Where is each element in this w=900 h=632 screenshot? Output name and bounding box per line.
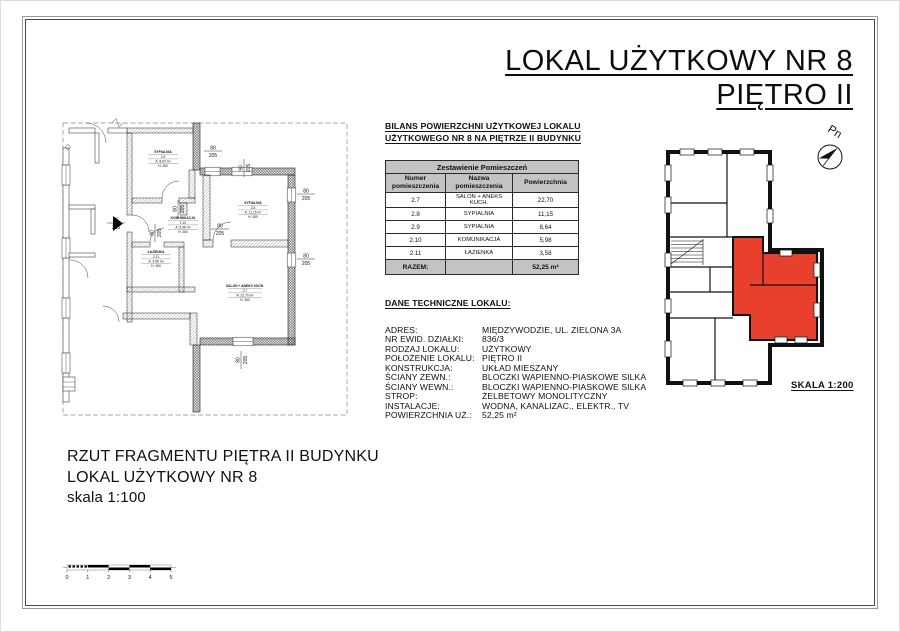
north-label: Pn — [825, 123, 843, 141]
total-value: 52,25 m² — [513, 260, 579, 275]
room-label-salon: SALON + ANEKS KUCH. 2.7 A: 22,70 m² H: 2… — [226, 284, 264, 302]
drawing-sheet: { "page": { "title_line1": "LOKAL UŻYTKO… — [0, 0, 900, 632]
svg-text:2.10: 2.10 — [180, 221, 187, 225]
dim-80-205-bottom: 80205 — [236, 351, 249, 369]
dim-80-205-right-lower: 80205 — [297, 254, 315, 267]
svg-text:A: 3,58 m²: A: 3,58 m² — [148, 259, 164, 263]
room-label-sypialnia-29: SYPIALNIA 2.9 A: 8,64 m² H: 260 — [148, 150, 178, 168]
room-schedule-table: Zestawienie Pomieszczeń Numer pomieszcze… — [385, 160, 579, 275]
svg-text:H: 260: H: 260 — [178, 230, 188, 234]
svg-text:205: 205 — [209, 153, 218, 159]
svg-text:A: 5,98 m²: A: 5,98 m² — [175, 225, 191, 229]
table-total-row: RAZEM: 52,25 m² — [386, 260, 579, 275]
tech-row: POWIERZCHNIA UŻ.:52,25 m² — [385, 411, 646, 421]
svg-text:4: 4 — [149, 575, 152, 581]
caption-line1: RZUT FRAGMENTU PIĘTRA II BUDYNKU — [67, 447, 379, 468]
svg-text:A: 22,70 m²: A: 22,70 m² — [236, 293, 254, 297]
dim-80-205-top: 80205 — [204, 146, 222, 159]
svg-text:205: 205 — [216, 231, 225, 237]
svg-text:3: 3 — [128, 575, 131, 581]
svg-text:80: 80 — [210, 146, 216, 152]
svg-text:80: 80 — [150, 230, 156, 236]
svg-text:SYPIALNIA: SYPIALNIA — [244, 201, 262, 205]
dim-95-205-entrance: 95205 — [107, 218, 125, 231]
interior-walls — [123, 128, 288, 345]
caption-line2: LOKAL UŻYTKOWY NR 8 — [67, 468, 379, 489]
svg-text:SYPIALNIA: SYPIALNIA — [154, 150, 172, 154]
svg-text:205: 205 — [112, 225, 121, 231]
svg-text:5: 5 — [169, 575, 172, 581]
svg-text:A: 11,15 m²: A: 11,15 m² — [245, 210, 263, 214]
svg-text:ŁAZIENKA: ŁAZIENKA — [148, 250, 165, 254]
svg-text:2: 2 — [107, 575, 110, 581]
technical-heading: DANE TECHNICZNE LOKALU: — [385, 299, 646, 309]
sheet-title: LOKAL UŻYTKOWY NR 8 PIĘTRO II — [505, 44, 853, 112]
room-label-komunikacja: KOMUNIKACJA 2.10 A: 5,98 m² H: 260 — [168, 216, 198, 234]
key-plan: Pn — [655, 113, 860, 403]
adjacent-structure — [62, 123, 127, 402]
svg-text:H: 260: H: 260 — [240, 298, 250, 302]
svg-text:80: 80 — [173, 206, 179, 212]
floor-plan: 80205 90205 80205 80205 80205 80205 9520… — [50, 110, 350, 440]
svg-text:SALON + ANEKS KUCH.: SALON + ANEKS KUCH. — [226, 284, 264, 288]
svg-text:80: 80 — [236, 357, 242, 363]
exterior-openings — [205, 167, 296, 346]
svg-text:80: 80 — [217, 224, 223, 230]
sheet-title-line1: LOKAL UŻYTKOWY NR 8 — [505, 44, 853, 78]
total-label: RAZEM: — [386, 260, 446, 275]
svg-text:H: 260: H: 260 — [248, 215, 258, 219]
table-row: 2.11 ŁAZIENKA 3,58 — [386, 247, 579, 260]
room-label-lazienka: ŁAZIENKA 2.11 A: 3,58 m² H: 260 — [141, 250, 171, 268]
table-title: Zestawienie Pomieszczeń — [386, 161, 579, 174]
svg-text:90: 90 — [239, 165, 245, 171]
north-arrow-icon: Pn — [817, 123, 844, 169]
svg-text:95: 95 — [113, 218, 119, 224]
svg-text:2.8: 2.8 — [251, 206, 256, 210]
svg-text:205: 205 — [246, 164, 252, 173]
balance-heading-line1: BILANS POWIERZCHNI UŻYTKOWEJ LOKALU — [385, 121, 581, 133]
key-plan-scale-label: SKALA 1:200 — [791, 380, 854, 391]
caption-scale: skala 1:100 — [67, 488, 379, 509]
col-header-area: Powierzchnia — [513, 174, 579, 193]
table-row: 2.10 KOMUNIKACJA 5,98 — [386, 234, 579, 247]
svg-text:1: 1 — [86, 575, 89, 581]
svg-text:80: 80 — [303, 189, 309, 195]
svg-text:205: 205 — [302, 261, 311, 267]
svg-text:80: 80 — [303, 254, 309, 260]
col-header-number: Numer pomieszczenia — [386, 174, 446, 193]
plan-caption: RZUT FRAGMENTU PIĘTRA II BUDYNKU LOKAL U… — [67, 447, 379, 509]
svg-text:H: 260: H: 260 — [151, 264, 161, 268]
scale-bar: 0 1 2 3 4 5 — [63, 558, 183, 584]
balance-heading-line2: UŻYTKOWEGO NR 8 NA PIĘTRZE II BUDYNKU — [385, 133, 581, 145]
room-label-sypialnia-28: SYPIALNIA 2.8 A: 11,15 m² H: 260 — [238, 201, 268, 219]
svg-text:205: 205 — [302, 196, 311, 202]
balance-heading: BILANS POWIERZCHNI UŻYTKOWEJ LOKALU UŻYT… — [385, 121, 581, 144]
table-row: 2.7 SALON + ANEKS KUCH. 22,70 — [386, 193, 579, 208]
col-header-name: Nazwa pomieszczenia — [446, 174, 513, 193]
scale-bar-numbers: 0 1 2 3 4 5 — [65, 575, 172, 581]
svg-text:2.9: 2.9 — [161, 155, 166, 159]
table-row: 2.8 SYPIALNIA 11,15 — [386, 208, 579, 221]
sheet-title-line2: PIĘTRO II — [505, 78, 853, 112]
svg-text:205: 205 — [180, 205, 186, 214]
svg-text:2.7: 2.7 — [243, 289, 248, 293]
table-row: 2.9 SYPIALNIA 8,64 — [386, 221, 579, 234]
technical-data: DANE TECHNICZNE LOKALU: ADRES:MIĘDZYWODZ… — [385, 299, 646, 421]
svg-text:A: 8,64 m²: A: 8,64 m² — [155, 159, 171, 163]
dim-80-205-bath: 80205 — [150, 224, 163, 242]
dim-80-205-right-upper: 80205 — [297, 189, 315, 202]
svg-text:KOMUNIKACJA: KOMUNIKACJA — [171, 216, 196, 220]
svg-text:0: 0 — [65, 575, 68, 581]
svg-text:205: 205 — [157, 229, 163, 238]
svg-text:205: 205 — [243, 356, 249, 365]
svg-text:H: 260: H: 260 — [158, 164, 168, 168]
svg-text:2.11: 2.11 — [153, 255, 159, 259]
